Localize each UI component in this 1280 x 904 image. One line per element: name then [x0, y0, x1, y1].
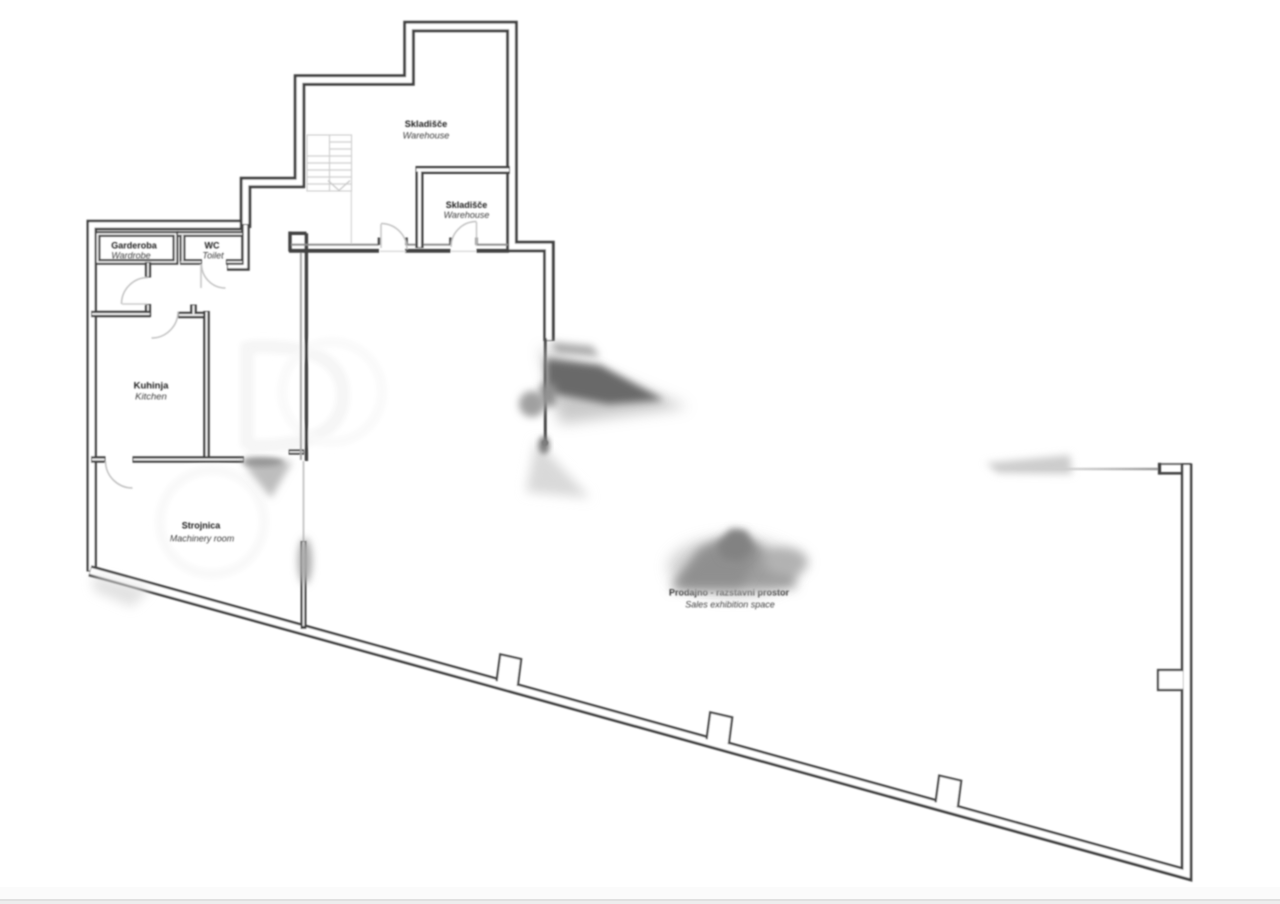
- svg-text:Garderoba: Garderoba: [111, 241, 158, 251]
- svg-text:Skladišče: Skladišče: [446, 200, 488, 210]
- svg-text:Sales exhibition space: Sales exhibition space: [685, 600, 775, 610]
- svg-text:Machinery room: Machinery room: [170, 534, 235, 544]
- svg-text:Wardrobe: Wardrobe: [111, 251, 150, 261]
- svg-text:Skladišče: Skladišče: [405, 119, 447, 129]
- svg-text:Warehouse: Warehouse: [403, 131, 450, 141]
- svg-text:Warehouse: Warehouse: [444, 210, 490, 220]
- svg-text:Strojnica: Strojnica: [182, 521, 222, 531]
- svg-text:Kitchen: Kitchen: [135, 392, 167, 403]
- svg-text:WC: WC: [205, 241, 220, 251]
- svg-text:Kuhinja: Kuhinja: [134, 381, 170, 392]
- svg-text:Toilet: Toilet: [202, 251, 224, 261]
